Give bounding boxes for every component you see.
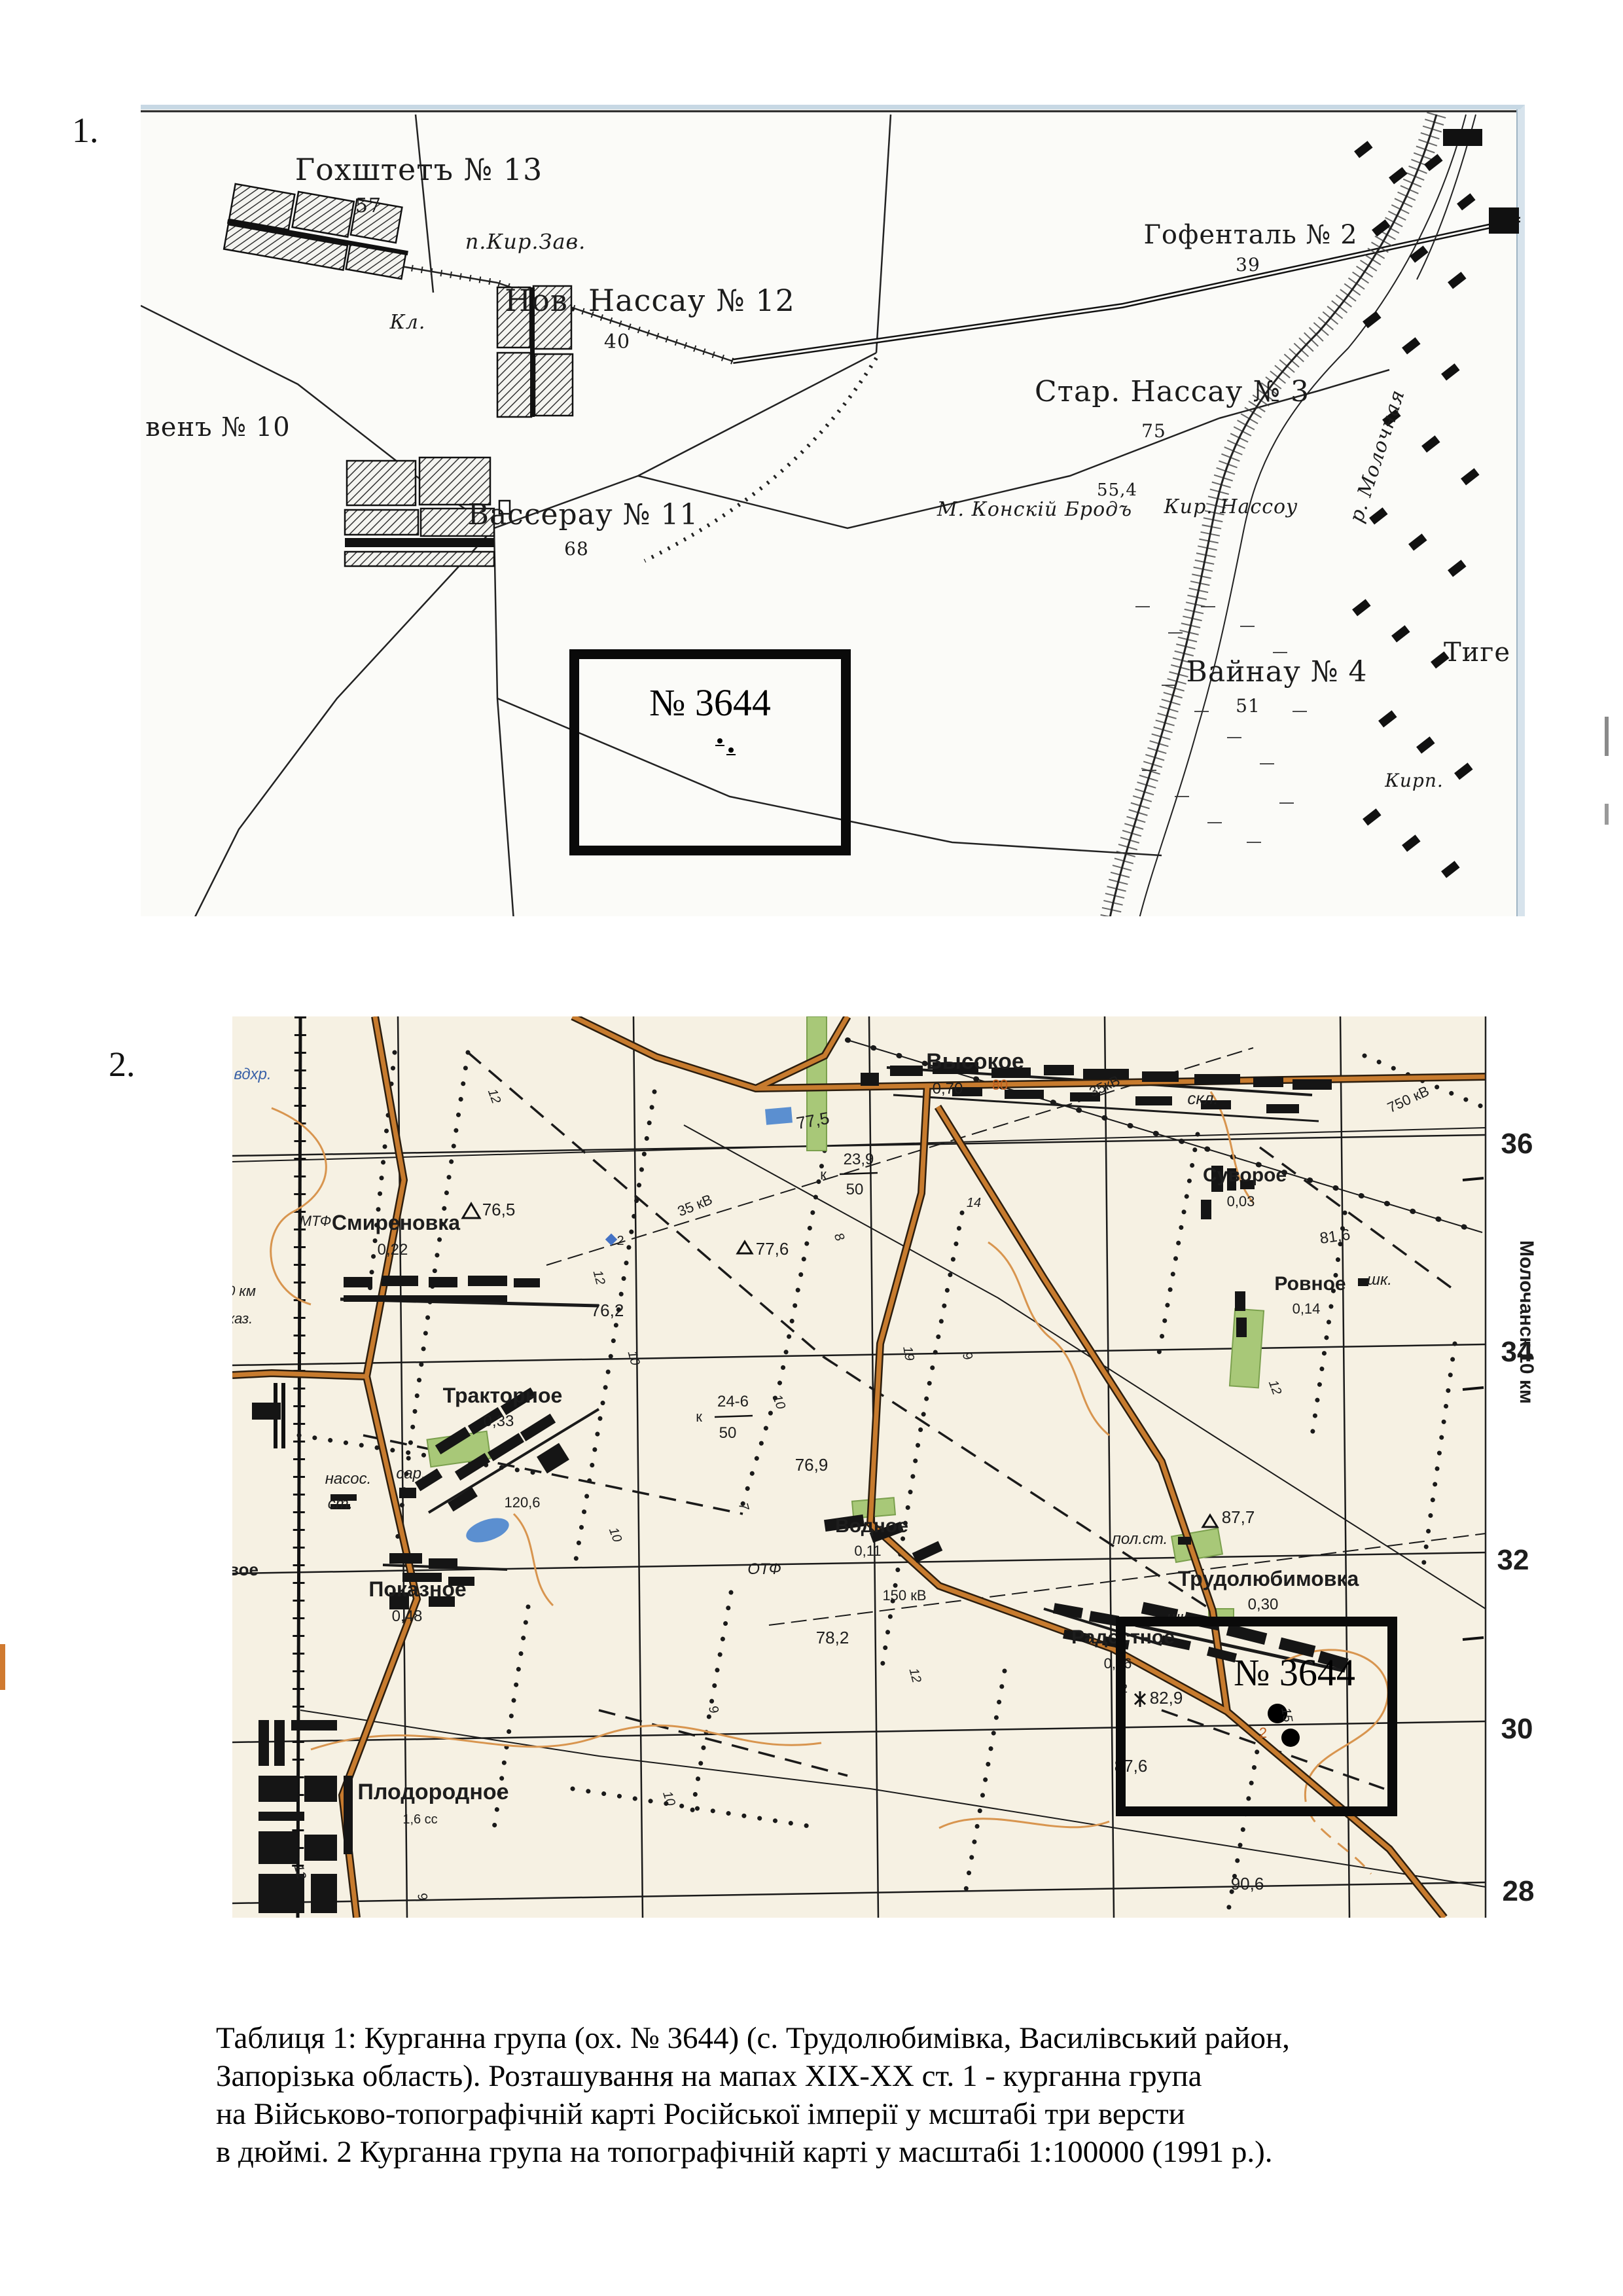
map-label: Тиге <box>1444 639 1510 666</box>
map-label: 80 <box>992 1078 1008 1092</box>
map-label: вое <box>232 1561 259 1578</box>
kurgan-frame-number-2: № 3644 <box>1234 1654 1355 1692</box>
map-label: 30 <box>1501 1715 1533 1744</box>
map-label: вдхр. <box>234 1067 271 1083</box>
figure-1-label: 1. <box>72 110 99 151</box>
map-label: 19 <box>901 1345 916 1361</box>
map-label: 32 <box>1497 1546 1529 1575</box>
map-2-topographic: Высокое0,70скл.77,523,950к35 кВ35кВ750 к… <box>232 1016 1544 1918</box>
map-label: 0,33 <box>484 1414 514 1429</box>
map-label: Гохштетъ № 13 <box>295 154 543 185</box>
map-label: 90,6 <box>1231 1875 1264 1892</box>
map-label: 0,70 <box>933 1081 963 1097</box>
map-label: Молочанск 10 км <box>1516 1240 1536 1404</box>
map-label: Показное <box>368 1579 466 1600</box>
map-label: Нов. Нассау № 12 <box>505 285 795 315</box>
kurgan-frame-box-1: № 3644 <box>569 649 851 855</box>
map-label: Смиреновка <box>332 1212 460 1233</box>
map-label: 2 <box>616 1234 624 1247</box>
map-label: Кл. <box>390 313 426 332</box>
map-label: 50 <box>719 1426 737 1441</box>
figure-2-label: 2. <box>109 1044 135 1085</box>
map-label: 0,22 <box>378 1242 408 1258</box>
map-label: Стар. Нассау № 3 <box>1035 378 1310 406</box>
map-label: 28 <box>1503 1877 1535 1906</box>
map-1-historical: Гохштетъ № 1357п.Кир.Зав.Нов. Нассау № 1… <box>141 105 1525 916</box>
kurgan-frame-box-2: № 3644 <box>1116 1617 1397 1816</box>
map-label: М. Конскій Бродъ <box>937 500 1132 520</box>
map-label: 57 <box>355 196 382 216</box>
map-label: 68 <box>564 540 589 558</box>
map-label: 76,2 <box>591 1302 624 1319</box>
map-label: 0,48 <box>392 1609 423 1624</box>
map-label: 39 <box>1236 256 1260 274</box>
caption: Таблиця 1: Курганна група (ох. № 3644) (… <box>216 2019 1531 2171</box>
map-label: 40 <box>604 332 630 352</box>
map-label: Вассерау № 11 <box>468 501 699 529</box>
map-label: ст. <box>328 1496 353 1512</box>
map-label: 1,6 сс <box>402 1813 437 1826</box>
map-label: 120,6 <box>504 1496 540 1510</box>
map-label: 81,6 <box>1319 1227 1351 1247</box>
scan-artifact <box>0 1644 5 1690</box>
map-label: 14 <box>967 1196 981 1210</box>
kurgan-frame-number-1: № 3644 <box>649 684 771 722</box>
map-label: 0,03 <box>1227 1194 1255 1209</box>
document-page: 1. <box>0 0 1623 2296</box>
map-label: п.Кир.Зав. <box>465 231 586 252</box>
map-label: 51 <box>1236 697 1260 715</box>
map-label: 78,2 <box>816 1629 849 1646</box>
map-label: 50 <box>846 1182 864 1198</box>
map-label: Ровное <box>1274 1274 1346 1294</box>
map-label: к <box>696 1410 702 1424</box>
caption-line: Запорізька область). Розташування на мап… <box>216 2057 1531 2095</box>
map-label: Трудолюбимовка <box>1178 1568 1359 1589</box>
map-label: венъ № 10 <box>145 414 290 440</box>
map-label: Суворое <box>1203 1166 1287 1185</box>
map-label: Высокое <box>926 1050 1024 1073</box>
map-label: 76,9 <box>795 1456 829 1473</box>
map-label: скл. <box>1187 1090 1218 1107</box>
caption-line: в дюймі. 2 Курганна група на топографічн… <box>216 2133 1531 2171</box>
map-label: 55,4 <box>1097 482 1137 499</box>
map-label: шк. <box>1367 1272 1392 1288</box>
map-label: Вайнау № 4 <box>1186 658 1368 687</box>
map-label: 24-6 <box>717 1394 749 1410</box>
map-label: к <box>820 1168 827 1182</box>
map-label: Гофенталь № 2 <box>1143 222 1357 248</box>
map-label: 23,9 <box>844 1152 874 1168</box>
map-label: 77,6 <box>756 1240 789 1257</box>
map-label: насос. <box>325 1471 372 1487</box>
caption-line: Таблиця 1: Курганна група (ох. № 3644) (… <box>216 2019 1531 2057</box>
map-label: Тракторное <box>443 1385 563 1406</box>
map-label: 0,11 <box>854 1544 881 1558</box>
map-label: пол.ст. <box>1113 1532 1168 1547</box>
map-label: 0,30 <box>1248 1597 1279 1613</box>
map-label: 0 км <box>232 1284 256 1299</box>
scan-artifact <box>1605 717 1609 756</box>
map-label: 34 <box>1501 1338 1533 1367</box>
map-label: 75 <box>1141 422 1166 440</box>
map-label: 87,7 <box>1222 1509 1255 1526</box>
map-label: Кирп. <box>1385 772 1444 790</box>
map-label: каз. <box>232 1312 253 1326</box>
map-label: ОТФ <box>747 1562 781 1577</box>
map-label: 36 <box>1501 1130 1533 1158</box>
map-label: 150 кВ <box>882 1588 926 1603</box>
map-label: Водное <box>835 1516 908 1536</box>
map-label: Плодородное <box>357 1781 508 1803</box>
caption-line: на Військово-топографічній карті Російсь… <box>216 2095 1531 2133</box>
scan-artifact <box>1605 804 1609 825</box>
map-label: 0,14 <box>1293 1302 1321 1316</box>
map-label: Кир. Нассоу <box>1164 497 1298 517</box>
map-label: сар. <box>396 1466 425 1482</box>
map-label: МТФ <box>300 1214 332 1229</box>
map-label: 76,5 <box>482 1201 516 1218</box>
